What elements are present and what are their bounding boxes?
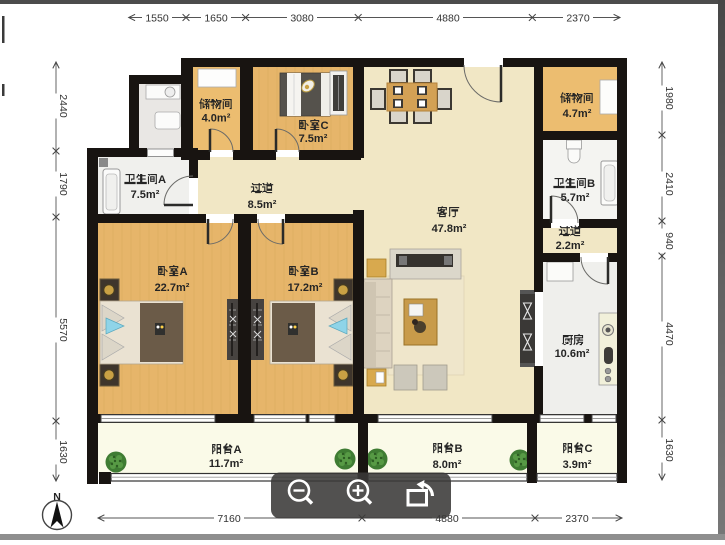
svg-text:1630: 1630	[57, 440, 69, 464]
svg-text:A: A	[179, 266, 187, 278]
svg-text:B: B	[454, 443, 462, 455]
svg-text:A: A	[158, 174, 166, 186]
svg-text:1790: 1790	[57, 172, 69, 196]
svg-text:5.7m²: 5.7m²	[561, 192, 590, 204]
svg-text:22.7m²: 22.7m²	[155, 282, 190, 294]
svg-text:4470: 4470	[663, 322, 675, 346]
svg-text:8.5m²: 8.5m²	[248, 199, 277, 211]
svg-text:2.2m²: 2.2m²	[556, 240, 585, 252]
svg-text:1980: 1980	[663, 86, 675, 110]
svg-text:7160: 7160	[217, 513, 241, 525]
svg-text:C: C	[584, 443, 592, 455]
svg-text:8.0m²: 8.0m²	[433, 459, 462, 471]
svg-text:47.8m²: 47.8m²	[432, 223, 467, 235]
svg-text:2370: 2370	[566, 12, 590, 24]
svg-text:N: N	[53, 491, 61, 503]
svg-text:10.6m²: 10.6m²	[555, 348, 590, 360]
svg-text:3080: 3080	[290, 12, 314, 24]
svg-text:2370: 2370	[565, 513, 589, 525]
svg-text:2440: 2440	[57, 94, 69, 118]
svg-text:B: B	[587, 178, 595, 190]
svg-text:940: 940	[663, 232, 675, 250]
svg-text:1550: 1550	[145, 12, 169, 24]
svg-text:5570: 5570	[57, 318, 69, 342]
svg-text:7.5m²: 7.5m²	[131, 189, 160, 201]
svg-text:C: C	[320, 120, 328, 132]
svg-text:1630: 1630	[663, 438, 675, 462]
svg-text:B: B	[310, 266, 318, 278]
svg-text:11.7m²: 11.7m²	[209, 458, 244, 470]
svg-text:4880: 4880	[436, 12, 460, 24]
svg-text:2410: 2410	[663, 172, 675, 196]
svg-text:4.0m²: 4.0m²	[202, 113, 231, 125]
svg-text:A: A	[233, 444, 241, 456]
svg-text:7.5m²: 7.5m²	[299, 133, 328, 145]
svg-text:1650: 1650	[204, 12, 228, 24]
svg-text:4.7m²: 4.7m²	[563, 108, 592, 120]
svg-text:3.9m²: 3.9m²	[563, 459, 592, 471]
svg-text:17.2m²: 17.2m²	[288, 282, 323, 294]
